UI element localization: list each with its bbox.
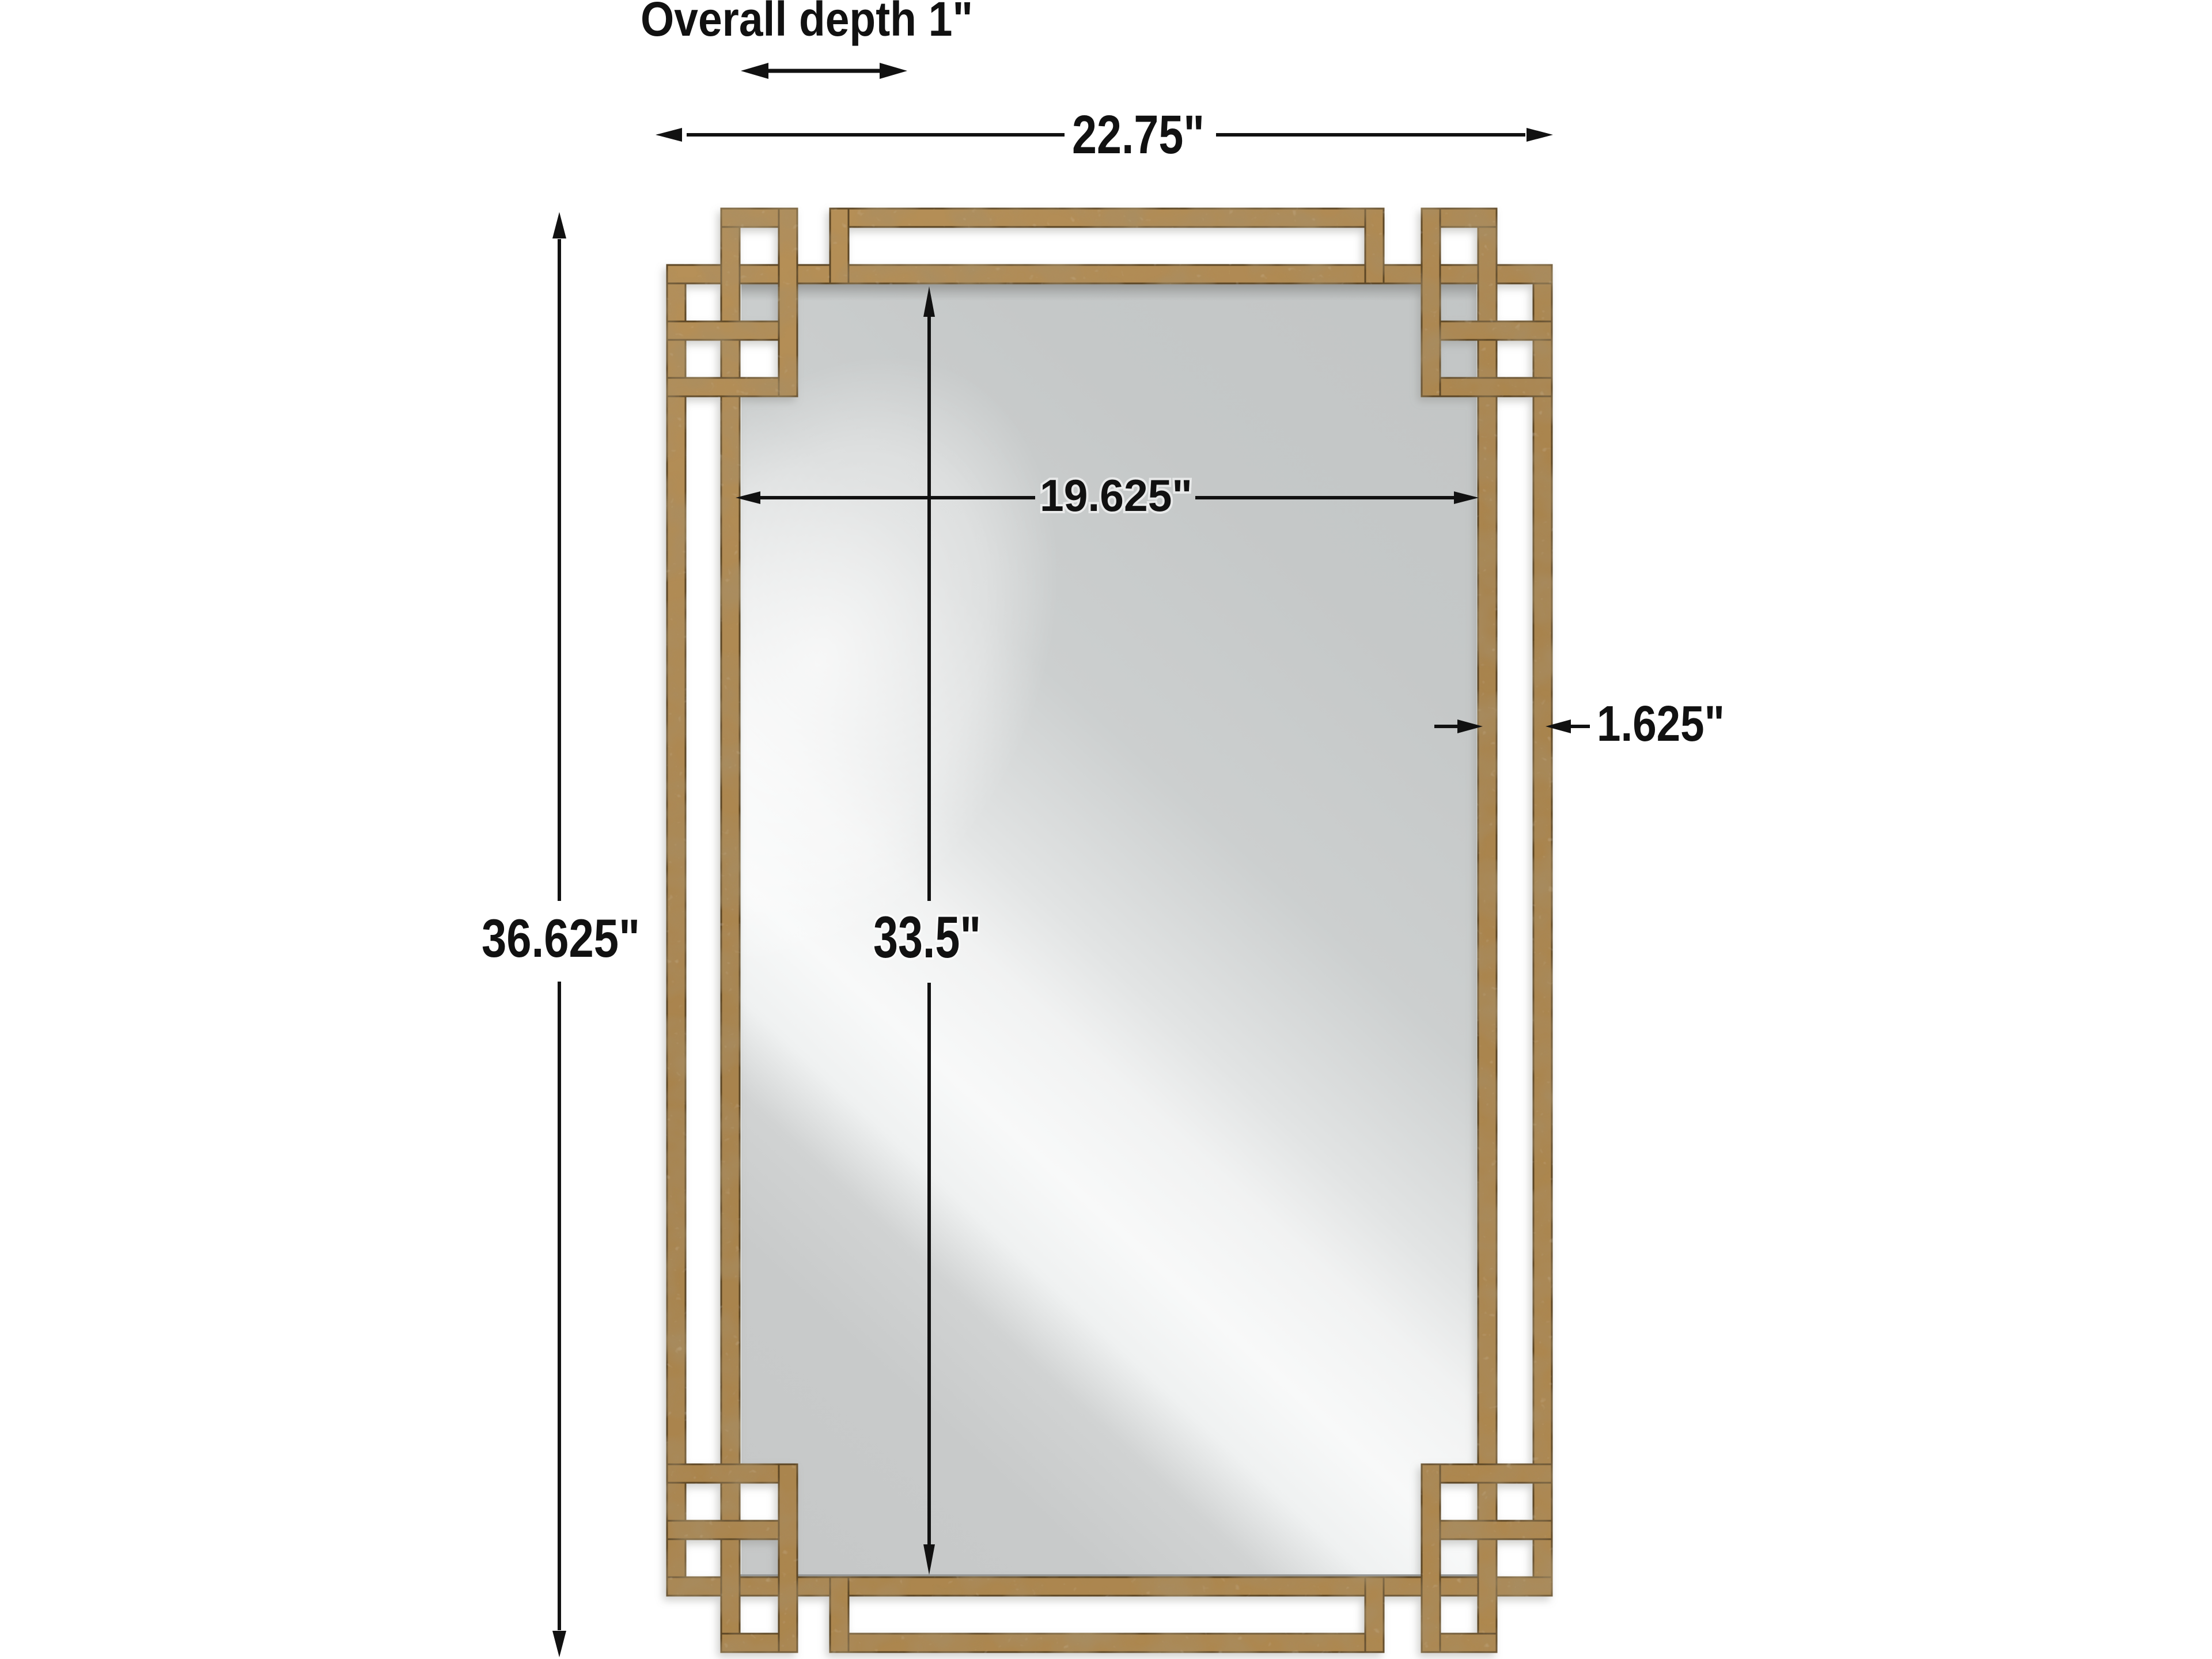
svg-text:33.5": 33.5" <box>873 904 981 970</box>
svg-text:1.625": 1.625" <box>1597 696 1725 752</box>
svg-text:19.625": 19.625" <box>1040 470 1192 521</box>
svg-text:22.75": 22.75" <box>1072 104 1205 165</box>
svg-text:36.625": 36.625" <box>482 908 640 968</box>
svg-text:Overall depth 1": Overall depth 1" <box>641 0 973 46</box>
